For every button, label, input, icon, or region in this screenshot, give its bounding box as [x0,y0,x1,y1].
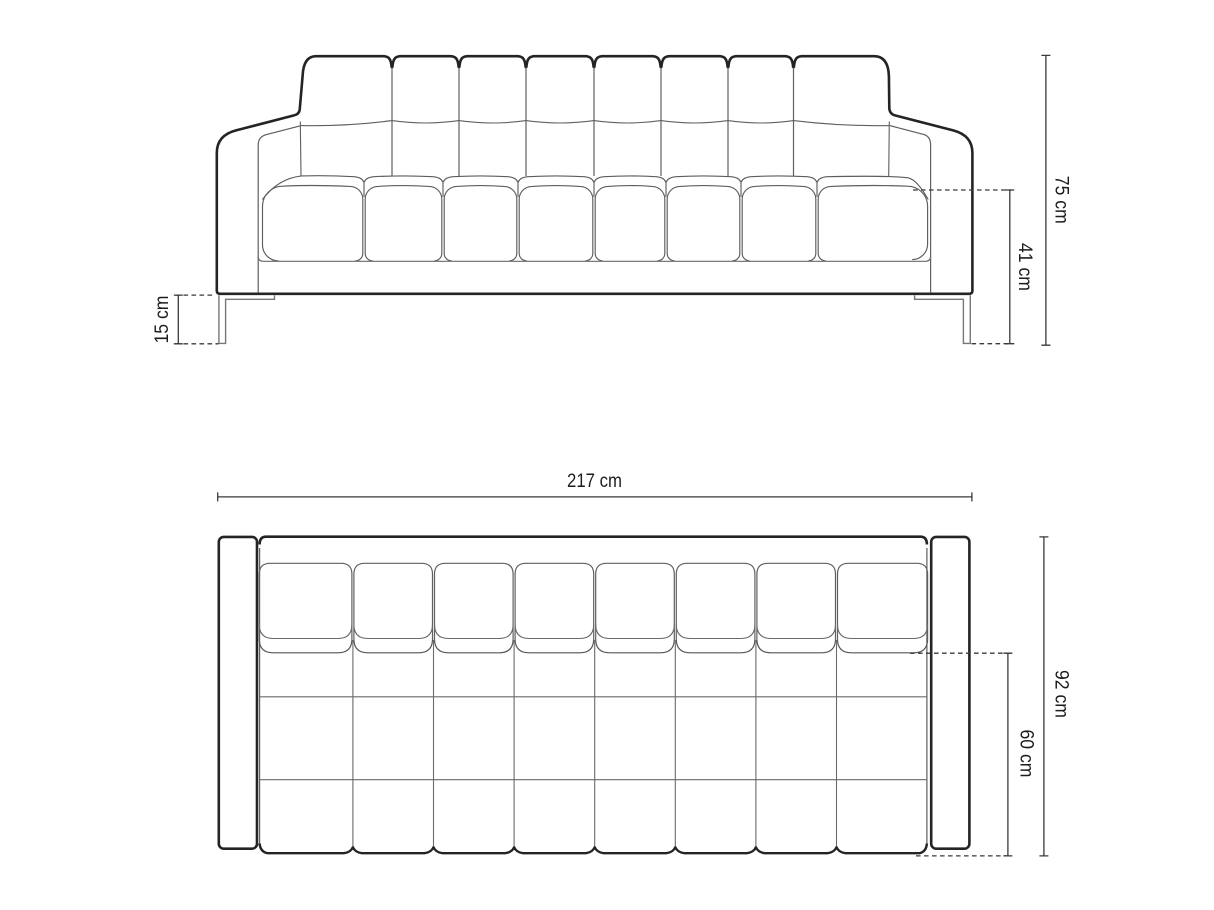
svg-text:41 cm: 41 cm [1014,243,1036,291]
svg-text:92 cm: 92 cm [1051,670,1073,718]
svg-text:217 cm: 217 cm [567,470,622,492]
svg-text:75 cm: 75 cm [1051,176,1073,224]
svg-text:15 cm: 15 cm [151,296,173,344]
svg-text:60 cm: 60 cm [1016,730,1038,778]
